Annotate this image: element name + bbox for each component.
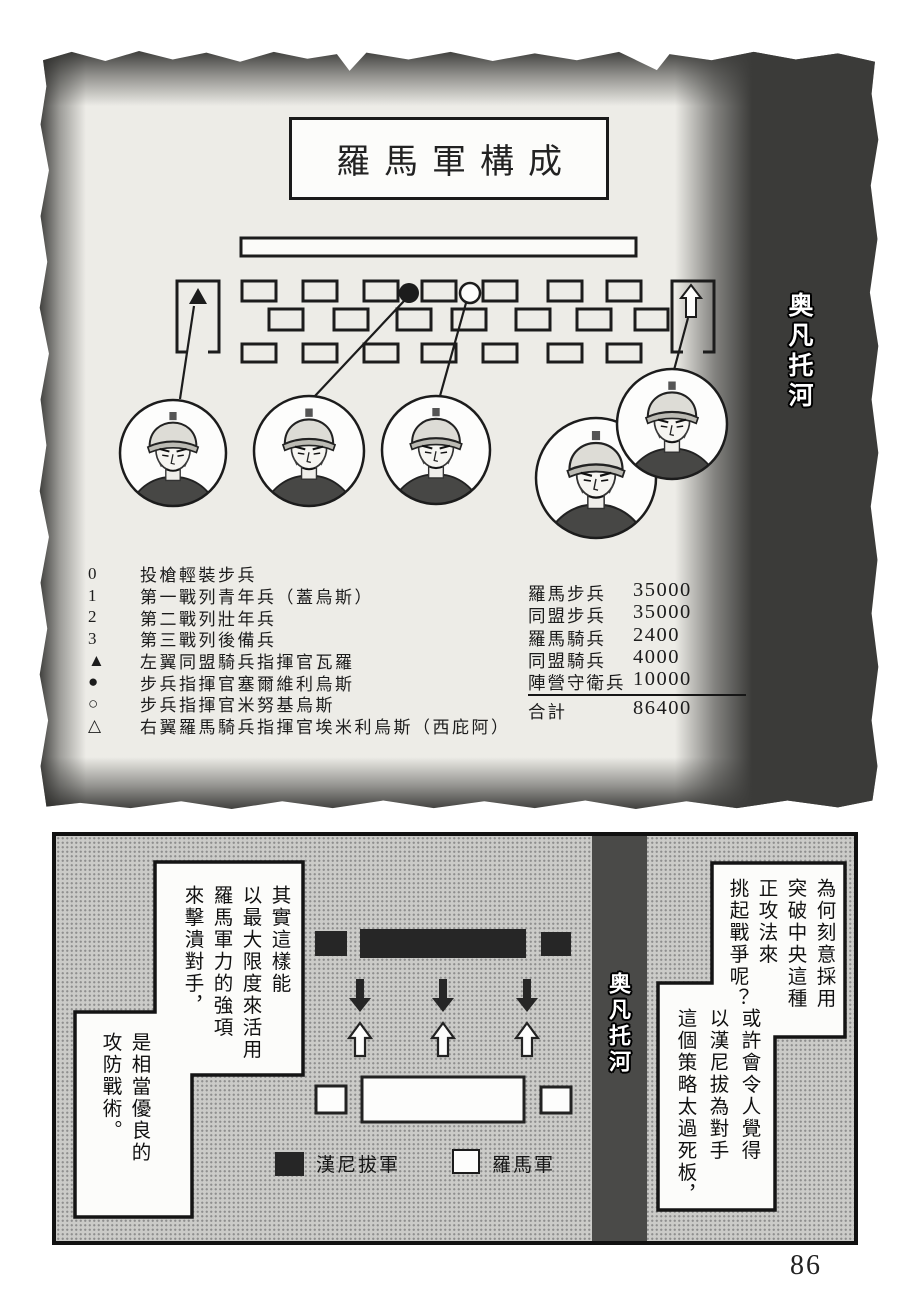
speech-line: 或許會令人覺得: [732, 1008, 764, 1208]
speech-line: 以漢尼拔為對手: [700, 1008, 732, 1208]
legend-symbol: 2: [88, 607, 140, 627]
table-row: 同盟步兵35000: [528, 603, 750, 625]
portrait-servilius: [254, 396, 364, 513]
triangle-filled-marker: [189, 288, 207, 304]
portrait-commander-group-right: [536, 369, 727, 545]
speech-text-right-bottom: 或許會令人覺得 以漢尼拔為對手 這個策略太過死板，: [668, 1008, 764, 1208]
troop-label: 同盟騎兵: [528, 648, 606, 673]
troop-table: 羅馬步兵35000 同盟步兵35000 羅馬騎兵2400 同盟騎兵4000 陣營…: [528, 581, 750, 722]
speech-line: 為何刻意採用: [809, 878, 838, 1033]
legend-symbol-triangle-open: △: [88, 716, 140, 736]
troop-value: 35000: [633, 579, 692, 602]
troop-value: 35000: [633, 601, 692, 624]
table-total-row: 合計86400: [528, 699, 750, 721]
circle-open-marker: [460, 283, 480, 303]
speech-line: 這個策略太過死板，: [668, 1008, 700, 1208]
troop-label: 羅馬步兵: [528, 581, 606, 606]
speech-line: 以最大限度來活用: [235, 885, 264, 1070]
table-row: 同盟騎兵4000: [528, 648, 750, 670]
page-number: 86: [790, 1250, 822, 1282]
table-row: 陣營守衛兵10000: [528, 670, 750, 692]
circle-filled-marker: [399, 283, 419, 303]
manga-page: 羅馬軍構成 0投槍輕裝步兵 1第一戰列青年兵（蓋烏斯） 2第二戰列壯年兵 3第三…: [0, 0, 906, 1300]
portrait-varro: [120, 400, 226, 513]
speech-line: 是相當優良的: [124, 1032, 153, 1212]
troop-value: 4000: [633, 646, 680, 669]
open-arrow-marker: [681, 285, 701, 317]
speech-line: 其實這樣能: [264, 885, 293, 1070]
legend-row: ●步兵指揮官塞爾維利烏斯: [88, 671, 518, 693]
legend-row: 2第二戰列壯年兵: [88, 606, 518, 628]
legend-symbol-circle-filled: ●: [88, 672, 140, 692]
speech-line: 來擊潰對手，: [177, 885, 206, 1070]
formation-row-3: [242, 344, 641, 362]
legend-row: △右翼羅馬騎兵指揮官埃米利烏斯（西庇阿）: [88, 715, 518, 737]
legend-row: 1第一戰列青年兵（蓋烏斯）: [88, 585, 518, 607]
troop-label: 陣營守衛兵: [528, 670, 626, 695]
speech-line: 攻防戰術。: [95, 1032, 124, 1212]
river-label: 奥凡托河: [780, 292, 816, 412]
formation-legend: 0投槍輕裝步兵 1第一戰列青年兵（蓋烏斯） 2第二戰列壯年兵 3第三戰列後備兵 …: [88, 563, 518, 737]
troop-label: 羅馬騎兵: [528, 626, 606, 651]
portrait-minucius: [382, 396, 490, 511]
legend-row: ▲左翼同盟騎兵指揮官瓦羅: [88, 650, 518, 672]
legend-symbol-circle-open: ○: [88, 694, 140, 714]
speech-line: 突破中央這種: [780, 878, 809, 1033]
troop-value: 10000: [633, 668, 692, 691]
legend-symbol: 3: [88, 629, 140, 649]
troop-label: 同盟步兵: [528, 603, 606, 628]
speech-text-left-top: 其實這樣能 以最大限度來活用 羅馬軍力的強項 來擊潰對手，: [177, 885, 293, 1070]
total-label: 合計: [528, 699, 567, 724]
formation-diagram: [90, 200, 780, 600]
legend-symbol-triangle-filled: ▲: [88, 651, 140, 671]
formation-row-1: [242, 281, 641, 301]
total-value: 86400: [633, 697, 692, 720]
legend-symbol: 1: [88, 586, 140, 606]
troop-value: 2400: [633, 624, 680, 647]
legend-row: 0投槍輕裝步兵: [88, 563, 518, 585]
legend-row: ○步兵指揮官米努基烏斯: [88, 693, 518, 715]
formation-front-bar: [241, 238, 636, 256]
diagram-title: 羅馬軍構成: [322, 134, 576, 183]
speech-text-left-bottom: 是相當優良的 攻防戰術。: [95, 1032, 153, 1212]
legend-row: 3第三戰列後備兵: [88, 628, 518, 650]
speech-line: 羅馬軍力的強項: [206, 885, 235, 1070]
legend-symbol: 0: [88, 564, 140, 584]
formation-row-2: [269, 309, 668, 330]
legend-label: 右翼羅馬騎兵指揮官埃米利烏斯（西庇阿）: [140, 713, 511, 738]
table-row: 羅馬騎兵2400: [528, 626, 750, 648]
diagram-title-box: 羅馬軍構成: [289, 117, 609, 200]
table-row: 羅馬步兵35000: [528, 581, 750, 603]
